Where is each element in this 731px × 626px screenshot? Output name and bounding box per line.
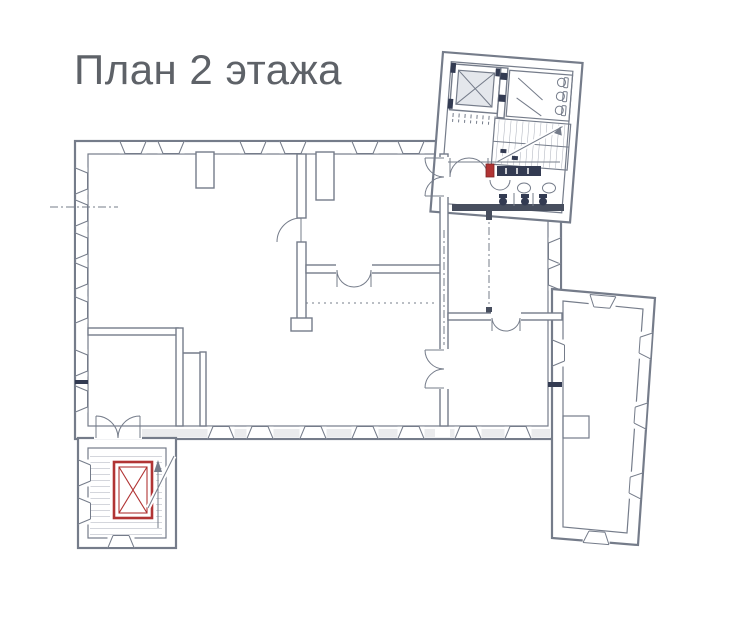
floor-plan-canvas	[0, 0, 731, 626]
sink-counter-icon	[497, 166, 541, 176]
window-icon	[76, 350, 88, 377]
dark-sill	[75, 380, 88, 384]
window-icon	[583, 531, 611, 545]
interior-wall	[297, 242, 306, 330]
window-icon	[76, 297, 88, 324]
window-icon	[398, 142, 425, 154]
window-icon	[76, 200, 88, 227]
window-icon	[158, 142, 185, 154]
window-icon	[76, 263, 88, 290]
dark-mark	[500, 149, 506, 153]
elevator-icon	[448, 63, 502, 114]
window-icon	[549, 238, 561, 265]
dark-jamb	[498, 95, 506, 103]
dark-jamb	[500, 73, 508, 81]
interior-wall	[306, 265, 443, 273]
wall-stub	[486, 211, 492, 220]
window-icon	[79, 498, 91, 525]
window-icon	[280, 142, 307, 154]
chimney-pier	[316, 152, 334, 200]
window-icon	[247, 427, 274, 439]
window-icon	[108, 536, 135, 548]
window-icon	[240, 142, 267, 154]
chimney-pier	[196, 152, 214, 188]
window-icon	[352, 142, 379, 154]
dark-mark	[512, 156, 518, 160]
toilet-icon	[521, 194, 529, 206]
dark-wall-segment	[452, 204, 564, 211]
window-icon	[76, 233, 88, 260]
interior-wall	[88, 328, 178, 335]
window-icon	[208, 427, 235, 439]
interior-wall	[297, 154, 306, 218]
window-icon	[588, 294, 616, 308]
window-icon	[398, 427, 425, 439]
window-icon	[352, 427, 379, 439]
window-icon	[455, 427, 482, 439]
window-icon	[79, 460, 91, 487]
window-icon	[120, 142, 147, 154]
toilet-icon	[539, 194, 547, 206]
window-icon	[76, 168, 88, 195]
interior-wall	[200, 352, 206, 426]
right-wing	[548, 289, 655, 545]
interior-wall	[291, 318, 312, 331]
toilet-icon	[499, 194, 507, 206]
window-icon	[634, 402, 648, 430]
dark-wall-segment	[548, 382, 562, 387]
window-icon	[76, 386, 88, 413]
window-icon	[549, 264, 561, 291]
window-icon	[629, 472, 643, 500]
interior-wall	[176, 328, 183, 426]
window-icon	[639, 332, 653, 360]
window-icon	[553, 340, 565, 367]
riser-red-icon	[486, 164, 494, 177]
screenshot-root: План 2 этажа	[0, 0, 731, 626]
window-icon	[300, 427, 327, 439]
window-icon	[505, 427, 532, 439]
